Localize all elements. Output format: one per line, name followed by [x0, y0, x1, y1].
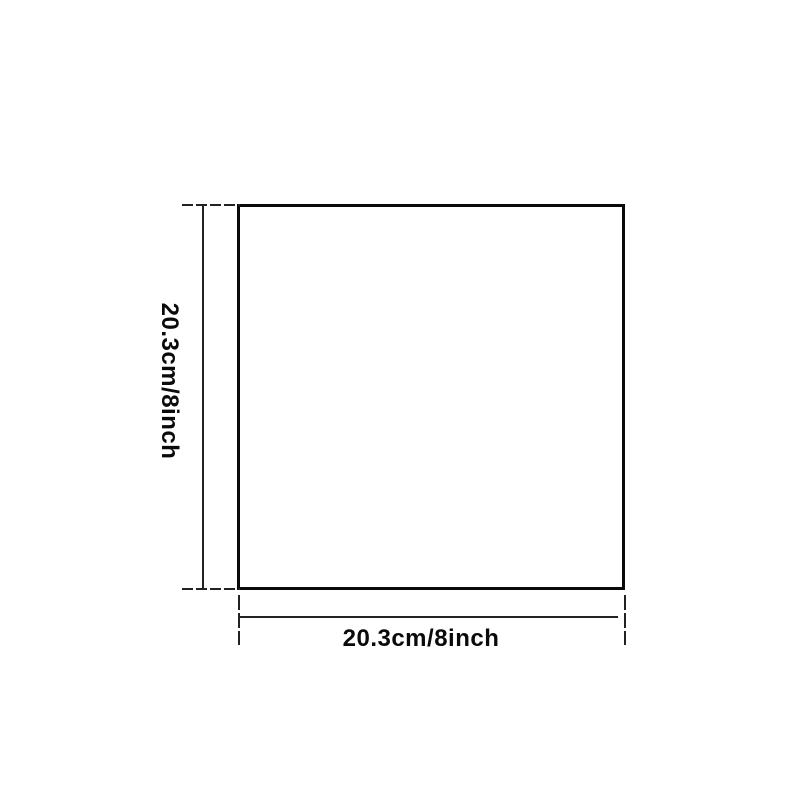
- width-dimension-line: [238, 616, 618, 618]
- height-dimension-label: 20.3cm/8inch: [155, 303, 183, 460]
- height-extension-tick-bottom: [182, 588, 240, 590]
- width-extension-line-left: [238, 595, 240, 645]
- height-dimension-line: [202, 205, 204, 589]
- width-extension-line-right: [624, 595, 626, 645]
- height-extension-tick-top: [182, 204, 240, 206]
- dimension-diagram: 20.3cm/8inch 20.3cm/8inch: [0, 0, 800, 800]
- width-dimension-label: 20.3cm/8inch: [343, 625, 500, 653]
- product-square-outline: [237, 204, 625, 590]
